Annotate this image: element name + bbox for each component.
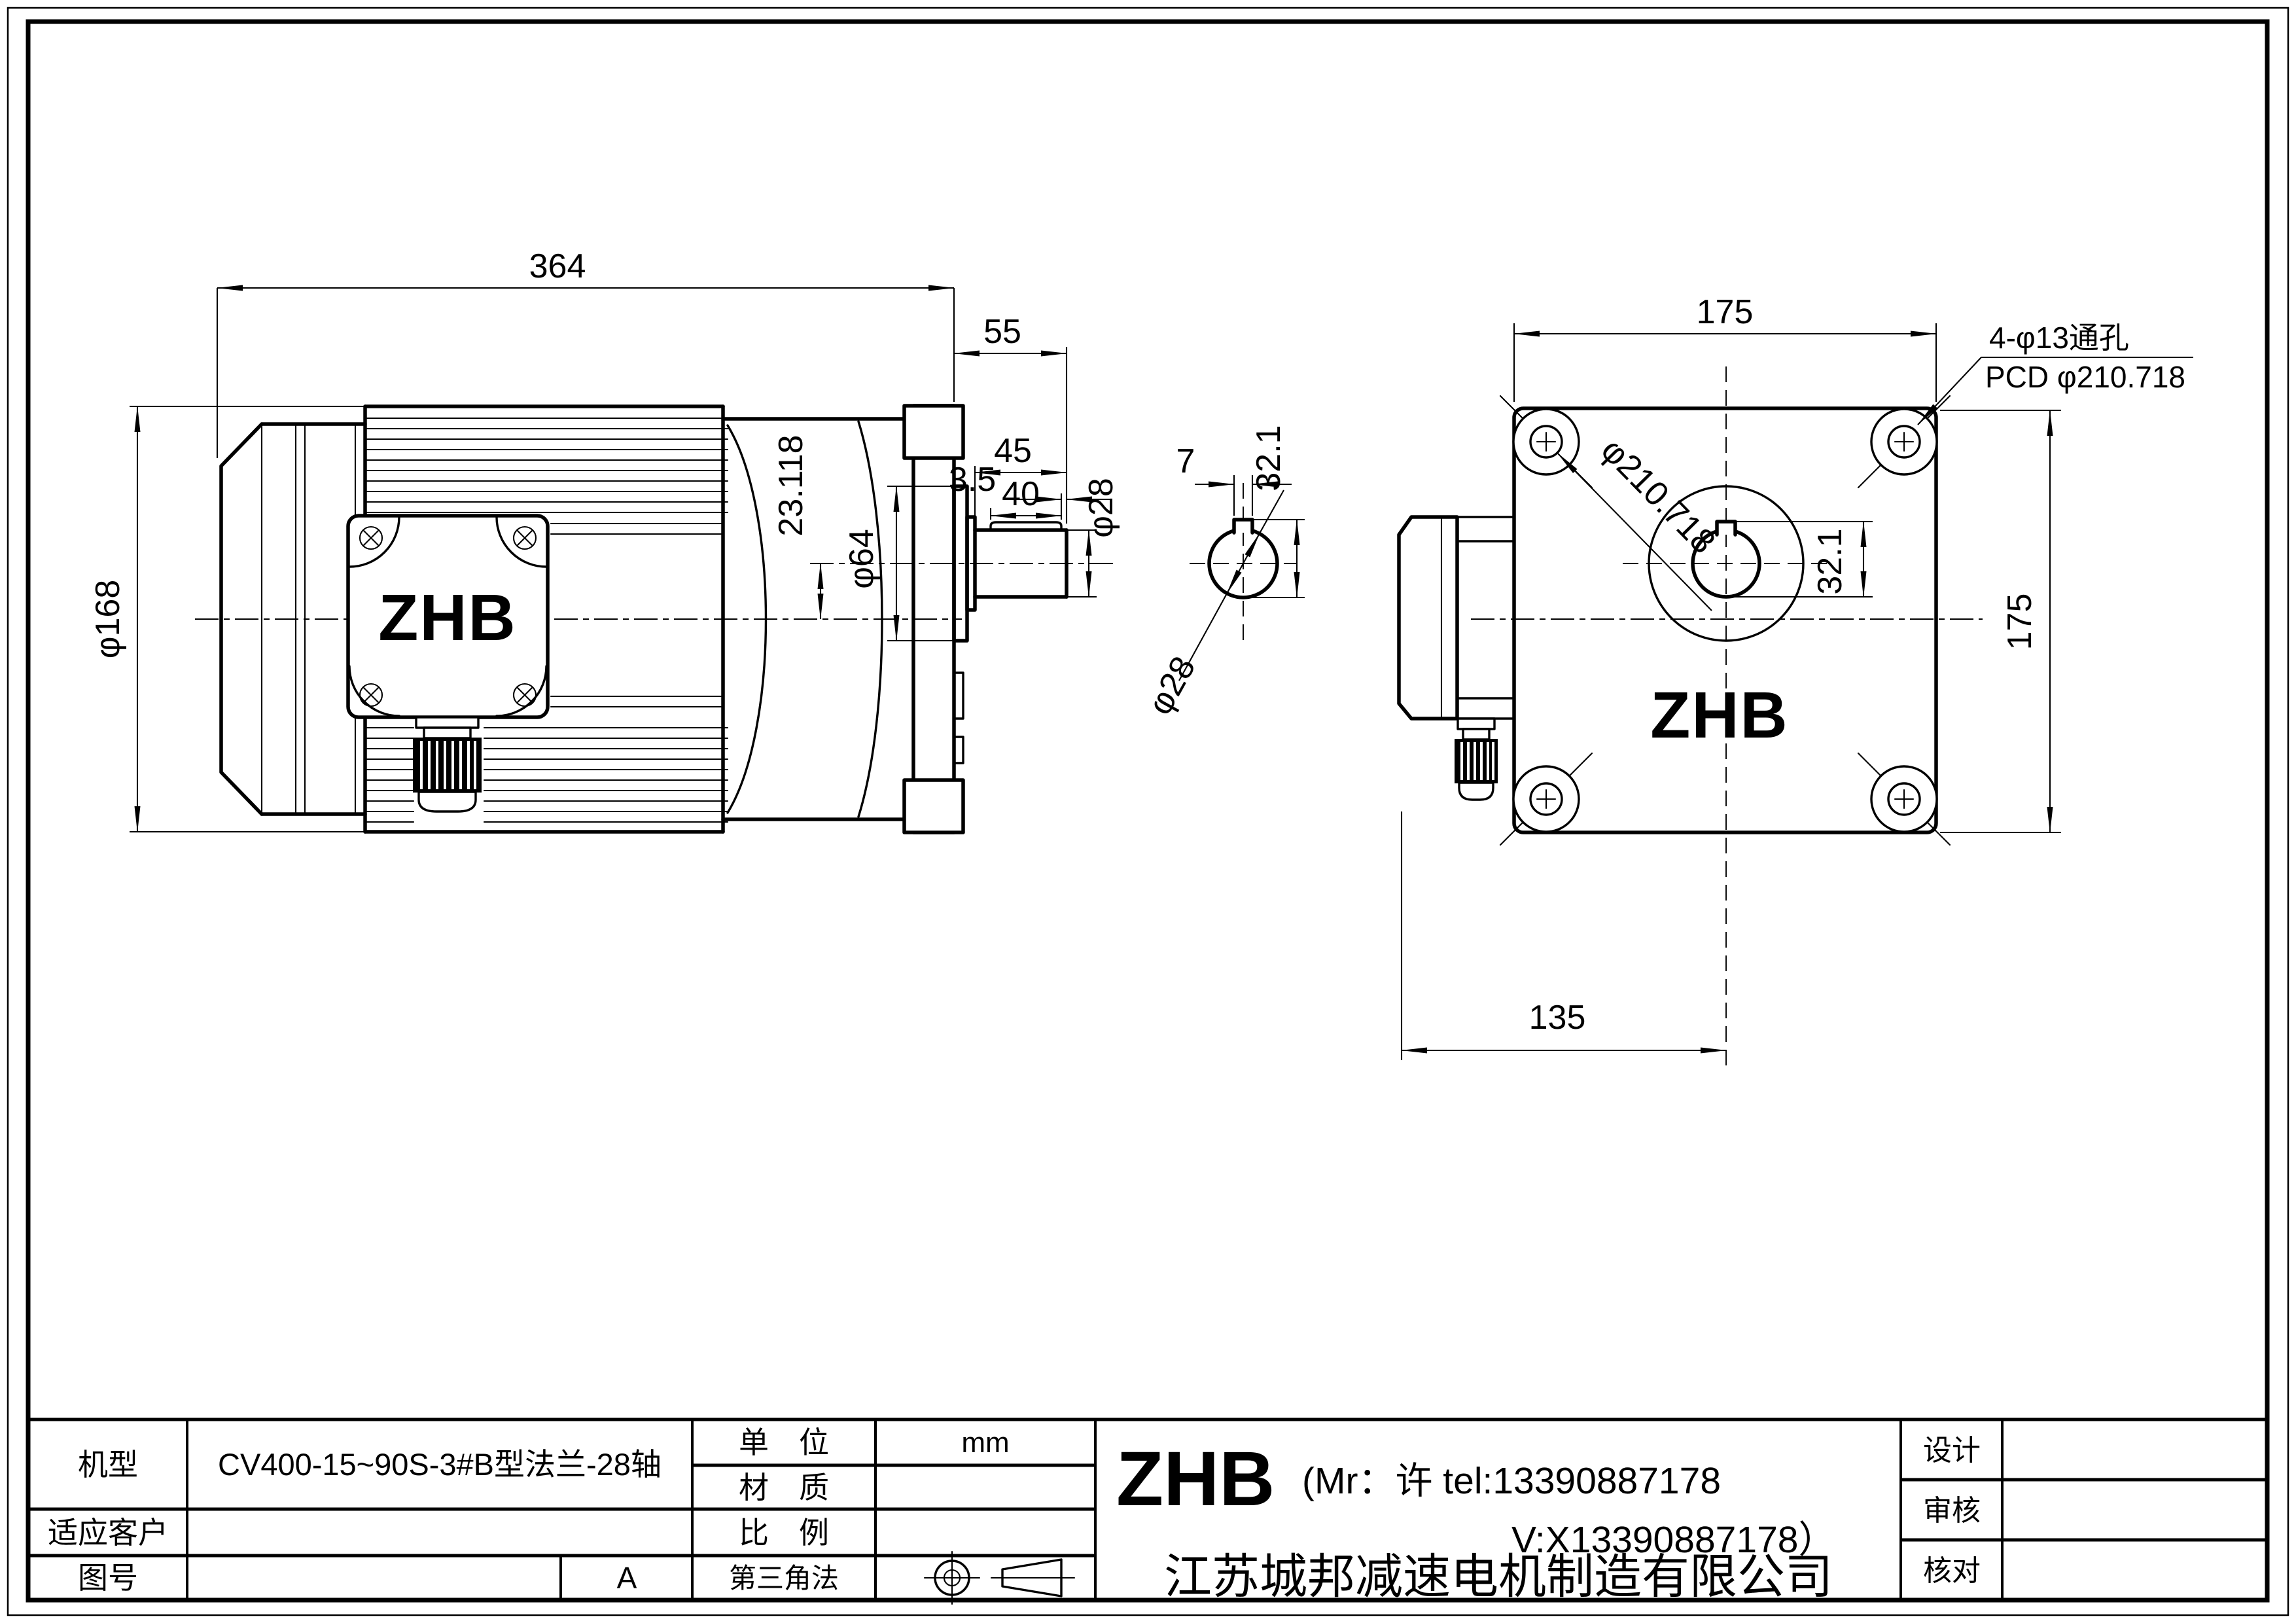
dim-shaft-length: 45 xyxy=(994,432,1032,470)
dim-flange-height: 175 xyxy=(2001,594,2039,651)
dim-key-end-offset: 3.5 xyxy=(949,461,996,499)
terminal-box: ZHB xyxy=(348,516,548,717)
dim-pilot-dia: φ64 xyxy=(843,529,881,589)
company-contact-1: (Mr：许 tel:13390887178 xyxy=(1302,1460,1721,1502)
unit-label: 单 位 xyxy=(739,1425,829,1459)
pcd-note: PCD φ210.718 xyxy=(1985,360,2185,394)
engineering-drawing-canvas: ZHB 364 55 xyxy=(0,0,2296,1623)
check-label: 核对 xyxy=(1923,1555,1981,1587)
dim-housing-length: 55 xyxy=(983,313,1021,351)
customer-label: 适应客户 xyxy=(48,1516,168,1550)
scale-label: 比 例 xyxy=(739,1516,829,1550)
company-brand: ZHB xyxy=(1116,1436,1275,1522)
dim-key-width: 7 xyxy=(1176,442,1195,480)
dwg-no-label: 图号 xyxy=(78,1561,138,1595)
design-label: 设计 xyxy=(1923,1435,1981,1467)
side-logo-text: ZHB xyxy=(378,581,517,654)
dim-total-length: 364 xyxy=(529,247,586,285)
material-label: 材 质 xyxy=(739,1471,829,1505)
dim-keyway-length: 40 xyxy=(1002,475,1040,513)
dim-center-offset: 23.118 xyxy=(772,435,810,536)
dim-section-height: 32.1 xyxy=(1250,425,1288,491)
revision-value: A xyxy=(617,1561,637,1595)
model-value: CV400-15~90S-3#B型法兰-28轴 xyxy=(218,1447,662,1482)
dim-shaft-dia: φ28 xyxy=(1082,478,1120,538)
drawing-sheet: ZHB 364 55 xyxy=(0,0,2296,1623)
holes-note: 4-φ13通孔 xyxy=(1989,321,2129,355)
dim-motor-dia: φ168 xyxy=(89,580,127,658)
audit-label: 审核 xyxy=(1923,1495,1981,1527)
dim-hole-height: 32.1 xyxy=(1811,528,1849,594)
projection-label: 第三角法 xyxy=(729,1563,839,1594)
dim-box-offset: 135 xyxy=(1529,999,1586,1037)
company-name: 江苏城邦减速电机制造有限公司 xyxy=(1164,1550,1833,1603)
model-label: 机型 xyxy=(78,1448,138,1482)
unit-value: mm xyxy=(961,1427,1009,1459)
front-logo-text: ZHB xyxy=(1650,679,1789,752)
sheet-border xyxy=(8,8,2288,1615)
dim-flange-width: 175 xyxy=(1697,293,1754,331)
